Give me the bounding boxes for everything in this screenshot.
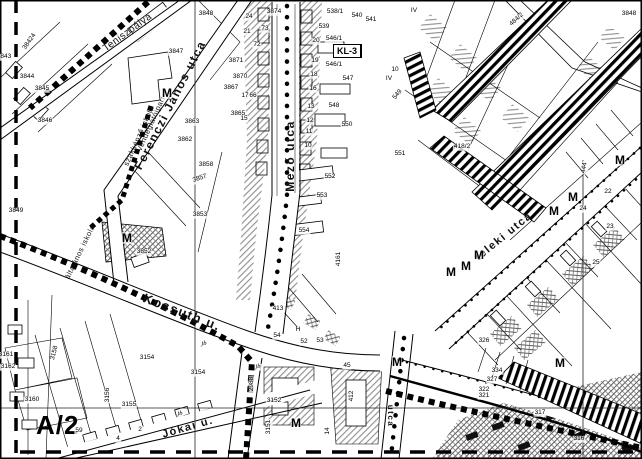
parcel-number-label: 3161 — [0, 352, 14, 359]
parcel-number-label: 3155 — [121, 402, 137, 409]
parcel-number-label: 551 — [394, 151, 407, 158]
parcel-number-label: 546/1 — [325, 62, 343, 69]
parcel-number-label: 14 — [325, 426, 332, 435]
monument-m-marker: M — [549, 205, 559, 217]
place-name-label: általános iskola — [64, 224, 97, 281]
label-layer: A/2 384243843384438453846384738483849384… — [0, 0, 642, 459]
parcel-number-label: 484/2 — [508, 11, 526, 28]
parcel-number-label: 3871 — [228, 58, 244, 65]
monument-m-marker: M — [122, 232, 132, 244]
parcel-number-label: 538/1 — [326, 9, 344, 16]
parcel-number-label: 327 — [486, 377, 499, 384]
parcel-number-label: 16 — [308, 86, 317, 93]
parcel-number-label: jb — [254, 364, 261, 371]
parcel-number-label: 413 — [272, 306, 285, 313]
parcel-number-label: 23 — [605, 224, 614, 231]
parcel-number-label: 3848 — [198, 11, 214, 18]
street-name-label: utca — [386, 405, 394, 427]
parcel-number-label: 3846 — [37, 118, 53, 125]
parcel-number-label: 17 — [240, 93, 249, 100]
parcel-number-label: 10 — [390, 67, 399, 74]
parcel-number-label: 546/1 — [325, 36, 343, 43]
parcel-number-label: 3162 — [0, 364, 16, 371]
parcel-number-label: 3845 — [34, 86, 50, 93]
monument-m-marker: M — [474, 249, 484, 261]
parcel-number-label: 3853 — [192, 212, 208, 219]
parcel-number-label: 3848 — [621, 11, 637, 18]
parcel-number-label: 53 — [315, 338, 324, 345]
parcel-number-label: 15 — [239, 116, 248, 123]
parcel-number-label: 317 — [534, 410, 547, 417]
parcel-number-label: 59 — [74, 428, 83, 435]
parcel-number-label: 3151 — [266, 419, 273, 435]
parcel-number-label: 3844 — [19, 74, 35, 81]
parcel-number-label: 38424 — [22, 32, 39, 52]
parcel-number-label: 13 — [306, 104, 315, 111]
parcel-number-label: 3156 — [105, 387, 112, 403]
parcel-number-label: 66 — [248, 93, 257, 100]
parcel-number-label: 3867 — [223, 85, 239, 92]
parcel-number-label: 3857 — [191, 173, 209, 184]
parcel-number-label: 552 — [324, 174, 337, 181]
parcel-number-label: 326 — [478, 338, 491, 345]
parcel-number-label: 549 — [391, 88, 404, 102]
parcel-number-label: 3158 — [50, 344, 61, 362]
street-name-label: Mező utca — [284, 120, 296, 192]
parcel-number-label: 18 — [309, 72, 318, 79]
parcel-number-label: 24 — [578, 206, 587, 213]
monument-m-marker: M — [162, 87, 172, 99]
parcel-number-label: 3849 — [8, 208, 24, 215]
parcel-number-label: 3843 — [0, 54, 12, 61]
parcel-number-label: 412 — [349, 390, 356, 403]
parcel-number-label: 25 — [591, 260, 600, 267]
parcel-number-label: 316 — [573, 436, 586, 443]
parcel-number-label: 541 — [365, 17, 378, 24]
map-canvas: A/2 384243843384438453846384738483849384… — [0, 0, 642, 459]
parcel-number-label: 3852 — [136, 249, 152, 256]
parcel-number-label: 3160 — [24, 397, 40, 404]
parcel-number-label: 3152 — [266, 398, 282, 405]
parcel-number-label: H — [295, 327, 302, 334]
parcel-number-label: 3858 — [198, 162, 214, 169]
parcel-number-label: 3847 — [168, 49, 184, 56]
parcel-number-label: 12 — [305, 118, 314, 125]
parcel-number-label: 334 — [491, 368, 504, 375]
monument-m-marker: M — [461, 260, 471, 272]
parcel-number-label: 10 — [303, 143, 312, 150]
parcel-number-label: 3863 — [184, 119, 200, 126]
parcel-number-label: 3870 — [232, 74, 248, 81]
zone-code-label: KL-3 — [334, 45, 361, 57]
parcel-number-label: 20 — [311, 38, 320, 45]
parcel-number-label: 554 — [298, 228, 311, 235]
parcel-number-label: 19 — [310, 58, 319, 65]
monument-m-marker: M — [568, 191, 578, 203]
parcel-number-label: 2988 — [249, 376, 256, 392]
parcel-number-label: 45 — [342, 363, 351, 370]
monument-m-marker: M — [291, 417, 301, 429]
parcel-number-label: 547 — [342, 76, 355, 83]
parcel-number-label: 22 — [603, 189, 612, 196]
monument-m-marker: M — [615, 154, 625, 166]
parcel-number-label: 4 — [115, 436, 121, 443]
monument-m-marker: M — [446, 266, 456, 278]
street-name-label: Jókai u. — [161, 415, 215, 440]
parcel-number-label: 3874 — [266, 9, 282, 16]
parcel-number-label: 24 — [244, 14, 253, 21]
parcel-number-label: 553 — [316, 193, 329, 200]
parcel-number-label: 72 — [252, 42, 261, 49]
parcel-number-label: IV — [385, 76, 393, 83]
parcel-number-label: 11 — [305, 129, 314, 136]
parcel-number-label: 539 — [318, 24, 331, 31]
place-name-label: Teniszpálya — [102, 12, 155, 54]
parcel-number-label: IV — [410, 8, 418, 15]
parcel-number-label: 3154 — [190, 370, 206, 377]
parcel-number-label: 321 — [478, 393, 491, 400]
parcel-number-label: 21 — [242, 29, 251, 36]
parcel-number-label: 418/2 — [453, 144, 471, 151]
parcel-number-label: 52 — [299, 339, 308, 346]
parcel-number-label: jb — [176, 411, 183, 418]
parcel-number-label: 4161 — [336, 251, 343, 267]
parcel-number-label: 444 — [581, 161, 590, 175]
parcel-number-label: 2 — [137, 427, 143, 434]
street-name-label: Ferenczi János utca — [132, 38, 208, 171]
parcel-number-label: 550 — [341, 122, 354, 129]
monument-m-marker: M — [555, 357, 565, 369]
monument-m-marker: M — [392, 356, 402, 368]
parcel-number-label: jb — [200, 341, 207, 348]
parcel-number-label: 548 — [328, 103, 341, 110]
parcel-number-label: 3154 — [139, 355, 155, 362]
sheet-number-label: A/2 — [36, 410, 79, 441]
parcel-number-label: 540 — [351, 13, 364, 20]
parcel-number-label: 3862 — [177, 137, 193, 144]
zone-box-kl3-top: KL-3 — [333, 44, 362, 58]
street-name-label: Kossuth u. — [141, 291, 222, 333]
parcel-number-label: 54 — [272, 333, 281, 340]
parcel-number-label: 73 — [260, 26, 269, 33]
